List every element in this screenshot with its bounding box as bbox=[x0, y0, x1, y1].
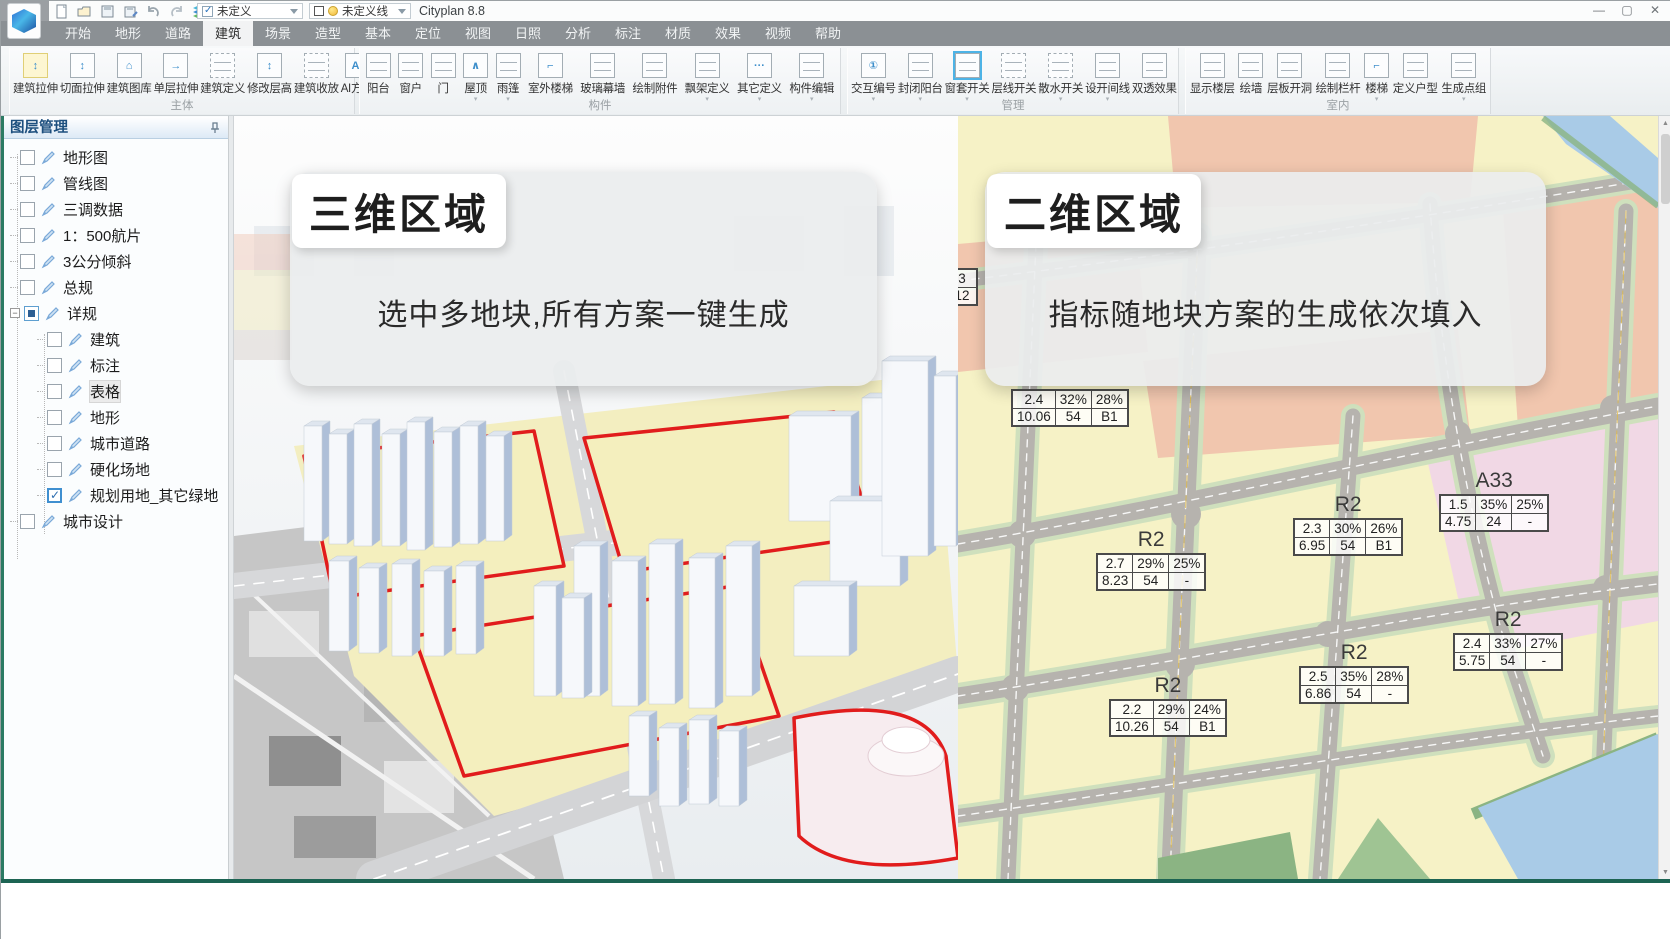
building-library-icon: ⌂ bbox=[117, 53, 142, 78]
indicator-values: 2.229%24%10.2654B1 bbox=[1109, 699, 1227, 737]
layer-item: 城市设计 bbox=[4, 508, 226, 534]
layer-visibility-checkbox[interactable] bbox=[47, 332, 62, 347]
draw-railing-icon bbox=[1325, 53, 1350, 78]
pencil-icon[interactable] bbox=[41, 202, 56, 217]
zone-code-label: R2 bbox=[1109, 674, 1227, 698]
canopy-button[interactable]: 雨篷▾ bbox=[495, 50, 522, 103]
ribbon-button-label: 窗户 bbox=[399, 80, 421, 96]
layer-visibility-checkbox[interactable] bbox=[20, 150, 35, 165]
layer-item: 地形图 bbox=[4, 144, 226, 170]
banner-2d-title: 二维区域 bbox=[987, 174, 1201, 248]
single-floor-extrude-icon: → bbox=[163, 53, 188, 78]
bay-line-icon bbox=[1095, 53, 1120, 78]
bay-line-button[interactable]: 设开间线▾ bbox=[1084, 50, 1131, 103]
slab-hole-icon bbox=[1277, 53, 1302, 78]
tree-connector bbox=[37, 365, 45, 366]
ribbon-tab-3[interactable]: 道路 bbox=[153, 21, 203, 46]
layer-panel-title: 图层管理 bbox=[10, 120, 68, 136]
app-logo[interactable] bbox=[7, 3, 41, 39]
floor-height-icon: ↕ bbox=[257, 53, 282, 78]
ribbon-button-label: 屋顶 bbox=[464, 80, 486, 96]
ribbon-tab-11[interactable]: 分析 bbox=[553, 21, 603, 46]
define-unit-button[interactable]: 定义户型 bbox=[1392, 50, 1439, 97]
layer-label[interactable]: 硬化场地 bbox=[90, 459, 150, 480]
layer-item: 规划用地_其它绿地 bbox=[4, 482, 226, 508]
layer-label[interactable]: 表格 bbox=[90, 381, 120, 402]
layer-panel-header: 图层管理 bbox=[4, 117, 228, 139]
window-button[interactable]: 窗户 bbox=[397, 50, 424, 97]
save-as-icon[interactable] bbox=[122, 3, 138, 19]
layer-visibility-checkbox[interactable] bbox=[20, 176, 35, 191]
checked-checkbox-icon[interactable] bbox=[202, 6, 213, 17]
other-define-button[interactable]: ···其它定义▾ bbox=[736, 50, 783, 103]
layer-visibility-checkbox[interactable] bbox=[47, 410, 62, 425]
define-unit-icon bbox=[1403, 53, 1428, 78]
pencil-icon[interactable] bbox=[68, 436, 83, 451]
undo-icon[interactable] bbox=[145, 3, 161, 19]
ribbon-tab-bar: 开始地形道路建筑场景造型基本定位视图日照分析标注材质效果视频帮助 bbox=[1, 21, 1670, 46]
ribbon-tab-2[interactable]: 地形 bbox=[103, 21, 153, 46]
section-extrude-button[interactable]: ↕切面拉伸 bbox=[59, 50, 106, 97]
parcel-indicator-table: 2.432%28%10.0654B1 bbox=[1011, 389, 1129, 427]
floor-line-toggle-icon bbox=[1001, 53, 1026, 78]
ribbon-button-label: 显示楼层 bbox=[1190, 80, 1235, 96]
ribbon-button-label: 交互编号 bbox=[851, 80, 896, 96]
indicator-values: 1.535%25%4.7524- bbox=[1439, 494, 1549, 532]
drawing-canvas[interactable]: 3122.432%28%10.0654B1R22.729%25%8.2354-R… bbox=[234, 116, 1658, 879]
ribbon-tab-16[interactable]: 帮助 bbox=[803, 21, 853, 46]
zone-code-label: R2 bbox=[1293, 493, 1403, 517]
ribbon-button-label: 层板开洞 bbox=[1267, 80, 1312, 96]
layer-visibility-checkbox[interactable] bbox=[47, 462, 62, 477]
draw-railing-button[interactable]: 绘制栏杆 bbox=[1315, 50, 1362, 97]
tree-connector bbox=[10, 183, 18, 184]
parcel-indicator-table-A33: A331.535%25%4.7524- bbox=[1439, 469, 1549, 532]
layer-label[interactable]: 总规 bbox=[63, 277, 93, 298]
balcony-button[interactable]: 阳台 bbox=[365, 50, 392, 97]
ribbon-group: ①交互编号▾封闭阳台▾窗套开关▾层线开关散水开关▾设开间线▾双透效果管理 bbox=[847, 48, 1179, 114]
building-define-icon bbox=[210, 53, 235, 78]
outdoor-stairs-button[interactable]: ⌐室外楼梯 bbox=[527, 50, 574, 97]
ribbon-tab-10[interactable]: 日照 bbox=[503, 21, 553, 46]
layer-visibility-checkbox[interactable] bbox=[47, 436, 62, 451]
title-bar: 未定义 未定义线 Cityplan 8.8 — ▢ ✕ bbox=[1, 1, 1670, 21]
layer-visibility-checkbox[interactable] bbox=[20, 280, 35, 295]
balcony-icon bbox=[366, 53, 391, 78]
layer-visibility-checkbox[interactable] bbox=[20, 202, 35, 217]
window-trim-toggle-icon bbox=[955, 53, 980, 78]
pencil-icon[interactable] bbox=[68, 358, 83, 373]
layer-label[interactable]: 详规 bbox=[67, 303, 97, 324]
save-icon[interactable] bbox=[99, 3, 115, 19]
glass-curtain-wall-icon bbox=[590, 53, 615, 78]
indicator-values: 312 bbox=[958, 268, 978, 306]
ribbon-button-label: 楼梯 bbox=[1365, 80, 1387, 96]
new-file-icon[interactable] bbox=[53, 3, 69, 19]
canopy-icon bbox=[496, 53, 521, 78]
parcel-indicator-table-R2: R22.729%25%8.2354- bbox=[1096, 528, 1206, 591]
section-extrude-icon: ↕ bbox=[70, 53, 95, 78]
overhang-define-button[interactable]: 飘架定义▾ bbox=[684, 50, 731, 103]
layer-item: 总规 bbox=[4, 274, 226, 300]
layer-visibility-checkbox[interactable] bbox=[20, 254, 35, 269]
ribbon-button-label: 散水开关 bbox=[1038, 80, 1083, 96]
layer-item: 地形 bbox=[4, 404, 226, 430]
indicator-values: 2.330%26%6.9554B1 bbox=[1293, 518, 1403, 556]
vertical-scrollbar[interactable]: ▲ ▼ bbox=[1658, 116, 1670, 879]
pencil-icon[interactable] bbox=[68, 410, 83, 425]
outdoor-stairs-icon: ⌐ bbox=[538, 53, 563, 78]
ribbon-tab-15[interactable]: 视频 bbox=[753, 21, 803, 46]
layer-visibility-checkbox[interactable] bbox=[24, 306, 39, 321]
window-trim-toggle-button[interactable]: 窗套开关▾ bbox=[944, 50, 991, 103]
ribbon-button-label: 定义户型 bbox=[1393, 80, 1438, 96]
chevron-down-icon[interactable] bbox=[290, 9, 298, 14]
generate-points-button[interactable]: 生成点组▾ bbox=[1440, 50, 1487, 103]
parcel-indicator-table-R2: R22.535%28%6.8654- bbox=[1299, 641, 1409, 704]
redo-icon[interactable] bbox=[168, 3, 184, 19]
ribbon-group-label: 主体 bbox=[10, 97, 354, 113]
layer-tree: 地形图管线图三调数据1：500航片3公分倾斜总规−详规建筑标注表格地形城市道路硬… bbox=[4, 144, 226, 877]
logo-cube-icon bbox=[12, 9, 36, 33]
zone-code-label: A33 bbox=[1439, 469, 1549, 493]
layer-visibility-checkbox[interactable] bbox=[20, 228, 35, 243]
ribbon-button-label: 层线开关 bbox=[991, 80, 1036, 96]
layer-label[interactable]: 规划用地_其它绿地 bbox=[90, 485, 218, 506]
ribbon-button-label: 绘制附件 bbox=[633, 80, 678, 96]
chevron-down-icon[interactable] bbox=[398, 9, 406, 14]
enclose-balcony-button[interactable]: 封闭阳台▾ bbox=[897, 50, 944, 103]
layer-item: 城市道路 bbox=[4, 430, 226, 456]
parcel-indicator-table-R2: R22.330%26%6.9554B1 bbox=[1293, 493, 1403, 556]
ribbon-button-label: 门 bbox=[438, 80, 449, 96]
banner-2d: 二维区域 指标随地块方案的生成依次填入 bbox=[985, 172, 1546, 386]
draw-wall-button[interactable]: 绘墙 bbox=[1237, 50, 1264, 97]
indicator-values: 2.433%27%5.7554- bbox=[1453, 633, 1563, 671]
banner-2d-subtitle: 指标随地块方案的生成依次填入 bbox=[985, 290, 1546, 334]
building-scale-button[interactable]: 建筑收放 bbox=[293, 50, 340, 97]
building-extrude-button[interactable]: ↕建筑拉伸 bbox=[12, 50, 59, 97]
collapse-toggle-icon[interactable]: − bbox=[10, 308, 20, 318]
layer-item: −详规 bbox=[4, 300, 226, 326]
ribbon-tab-7[interactable]: 基本 bbox=[353, 21, 403, 46]
ribbon-tab-1[interactable]: 开始 bbox=[53, 21, 103, 46]
ribbon-group: 阳台窗户门∧屋顶▾雨篷▾⌐室外楼梯玻璃幕墙绘制附件飘架定义▾···其它定义▾构件… bbox=[359, 48, 841, 114]
single-floor-extrude-button[interactable]: →单层拉伸 bbox=[152, 50, 199, 97]
tree-connector bbox=[37, 339, 45, 340]
pencil-icon[interactable] bbox=[68, 332, 83, 347]
xray-effect-icon bbox=[1142, 53, 1167, 78]
door-button[interactable]: 门 bbox=[430, 50, 457, 97]
open-folder-icon[interactable] bbox=[76, 3, 92, 19]
tree-connector bbox=[10, 209, 18, 210]
building-define-button[interactable]: 建筑定义 bbox=[199, 50, 246, 97]
ribbon-tab-8[interactable]: 定位 bbox=[403, 21, 453, 46]
cityplan-window: 未定义 未定义线 Cityplan 8.8 — ▢ ✕ 开始地形道路建筑场景造型… bbox=[0, 0, 1670, 939]
show-floors-button[interactable]: 显示楼层 bbox=[1189, 50, 1236, 97]
interactive-number-button[interactable]: ①交互编号▾ bbox=[850, 50, 897, 103]
tree-connector bbox=[37, 417, 45, 418]
pencil-icon[interactable] bbox=[41, 280, 56, 295]
ribbon-button-label: 切面拉伸 bbox=[60, 80, 105, 96]
app-title: Cityplan 8.8 bbox=[419, 4, 485, 18]
zone-code-label: R2 bbox=[1299, 641, 1409, 665]
layer-label[interactable]: 3公分倾斜 bbox=[63, 251, 131, 272]
close-button[interactable]: ✕ bbox=[1647, 3, 1663, 17]
door-icon bbox=[431, 53, 456, 78]
ribbon-button-label: 建筑定义 bbox=[200, 80, 245, 96]
show-floors-icon bbox=[1200, 53, 1225, 78]
draw-attachment-icon bbox=[642, 53, 667, 78]
main-area: 图层管理 地形图管线图三调数据1：500航片3公分倾斜总规−详规建筑标注表格地形… bbox=[1, 116, 1670, 879]
pushpin-icon[interactable] bbox=[208, 121, 222, 135]
xray-effect-button[interactable]: 双透效果 bbox=[1131, 50, 1178, 97]
layer-item: 硬化场地 bbox=[4, 456, 226, 482]
building-scale-icon bbox=[304, 53, 329, 78]
zone-code-label: R2 bbox=[1096, 528, 1206, 552]
pencil-icon[interactable] bbox=[41, 176, 56, 191]
indicator-values: 2.535%28%6.8654- bbox=[1299, 666, 1409, 704]
tree-connector bbox=[10, 521, 18, 522]
ribbon-button-label: 建筑收放 bbox=[294, 80, 339, 96]
slab-hole-button[interactable]: 层板开洞 bbox=[1266, 50, 1313, 97]
pencil-icon[interactable] bbox=[41, 254, 56, 269]
layer-visibility-checkbox[interactable] bbox=[47, 384, 62, 399]
draw-wall-icon bbox=[1238, 53, 1263, 78]
ribbon-button-label: 绘墙 bbox=[1240, 80, 1262, 96]
pencil-icon[interactable] bbox=[68, 462, 83, 477]
parcel-indicator-table: 312 bbox=[958, 268, 978, 306]
banner-3d-subtitle: 选中多地块,所有方案一键生成 bbox=[290, 290, 877, 334]
layer-label[interactable]: 标注 bbox=[90, 355, 120, 376]
ribbon-button-label: 绘制栏杆 bbox=[1316, 80, 1361, 96]
ribbon-button-label: 修改层高 bbox=[247, 80, 292, 96]
ribbon-tab-5[interactable]: 场景 bbox=[253, 21, 303, 46]
ribbon-button-label: 设开间线 bbox=[1085, 80, 1130, 96]
indicator-values: 2.432%28%10.0654B1 bbox=[1011, 389, 1129, 427]
tree-connector bbox=[10, 235, 18, 236]
pencil-icon[interactable] bbox=[41, 514, 56, 529]
color-swatch-icon[interactable] bbox=[314, 6, 324, 16]
generate-points-icon bbox=[1451, 53, 1476, 78]
layer-label[interactable]: 地形 bbox=[90, 407, 120, 428]
tree-connector bbox=[10, 287, 18, 288]
layer-item: 1：500航片 bbox=[4, 222, 226, 248]
layer-label[interactable]: 1：500航片 bbox=[63, 225, 141, 246]
window-edge bbox=[1, 116, 4, 879]
other-define-icon: ··· bbox=[747, 53, 772, 78]
floor-height-button[interactable]: ↕修改层高 bbox=[246, 50, 293, 97]
floor-line-toggle-button[interactable]: 层线开关 bbox=[990, 50, 1037, 97]
minimize-button[interactable]: — bbox=[1591, 3, 1607, 17]
window-icon bbox=[398, 53, 423, 78]
ribbon-button-label: 阳台 bbox=[367, 80, 389, 96]
line-style-combobox[interactable]: 未定义线 bbox=[309, 3, 411, 19]
bulb-icon bbox=[328, 6, 338, 16]
ribbon-button-label: 双透效果 bbox=[1132, 80, 1177, 96]
ribbon-button-label: 封闭阳台 bbox=[898, 80, 943, 96]
layer-label[interactable]: 城市设计 bbox=[63, 511, 123, 532]
parcel-indicator-table-R2: R22.433%27%5.7554- bbox=[1453, 608, 1563, 671]
ribbon-group: ↕建筑拉伸↕切面拉伸⌂建筑图库→单层拉伸建筑定义↕修改层高建筑收放AIAI方案主… bbox=[9, 48, 355, 114]
ribbon-tab-14[interactable]: 效果 bbox=[703, 21, 753, 46]
ribbon-button-label: 雨篷 bbox=[497, 80, 519, 96]
tree-connector bbox=[37, 443, 45, 444]
layer-item: 表格 bbox=[4, 378, 226, 404]
ribbon-button-label: 建筑图库 bbox=[107, 80, 152, 96]
scroll-up-arrow-icon[interactable]: ▲ bbox=[1659, 116, 1670, 130]
ribbon-group: 显示楼层绘墙层板开洞绘制栏杆⌐楼梯▾定义户型生成点组▾室内 bbox=[1185, 48, 1491, 114]
banner-3d-title: 三维区域 bbox=[292, 174, 506, 248]
layer-label[interactable]: 管线图 bbox=[63, 173, 108, 194]
combo-value: 未定义线 bbox=[342, 3, 388, 19]
layer-style-combobox[interactable]: 未定义 bbox=[197, 3, 303, 19]
ribbon-tab-4[interactable]: 建筑 bbox=[203, 21, 253, 46]
pencil-icon[interactable] bbox=[41, 150, 56, 165]
ribbon-group-label: 构件 bbox=[360, 97, 840, 113]
ribbon-tab-9[interactable]: 视图 bbox=[453, 21, 503, 46]
ribbon-group-label: 管理 bbox=[848, 97, 1178, 113]
component-edit-button[interactable]: 构件编辑▾ bbox=[788, 50, 835, 103]
pencil-icon[interactable] bbox=[41, 228, 56, 243]
ribbon-button-label: 建筑拉伸 bbox=[13, 80, 58, 96]
tree-connector bbox=[10, 261, 18, 262]
layer-item: 管线图 bbox=[4, 170, 226, 196]
layer-label[interactable]: 建筑 bbox=[90, 329, 120, 350]
stairs-button[interactable]: ⌐楼梯▾ bbox=[1363, 50, 1390, 103]
pencil-icon[interactable] bbox=[68, 488, 83, 503]
enclose-balcony-icon bbox=[908, 53, 933, 78]
component-edit-icon bbox=[799, 53, 824, 78]
ribbon-button-label: 单层拉伸 bbox=[153, 80, 198, 96]
layer-item: 3公分倾斜 bbox=[4, 248, 226, 274]
ribbon-button-label: 飘架定义 bbox=[685, 80, 730, 96]
draw-attachment-button[interactable]: 绘制附件 bbox=[632, 50, 679, 97]
scroll-down-arrow-icon[interactable]: ▼ bbox=[1659, 865, 1670, 879]
tree-connector bbox=[10, 157, 18, 158]
layer-item: 三调数据 bbox=[4, 196, 226, 222]
tree-connector bbox=[37, 391, 45, 392]
tree-connector bbox=[37, 469, 45, 470]
ribbon: ↕建筑拉伸↕切面拉伸⌂建筑图库→单层拉伸建筑定义↕修改层高建筑收放AIAI方案主… bbox=[1, 46, 1670, 116]
roof-button[interactable]: ∧屋顶▾ bbox=[462, 50, 489, 103]
tree-connector bbox=[37, 495, 45, 496]
ribbon-button-label: 生成点组 bbox=[1441, 80, 1486, 96]
indicator-values: 2.729%25%8.2354- bbox=[1096, 553, 1206, 591]
ribbon-tab-12[interactable]: 标注 bbox=[603, 21, 653, 46]
layer-visibility-checkbox[interactable] bbox=[47, 488, 62, 503]
ribbon-button-label: 室外楼梯 bbox=[528, 80, 573, 96]
interactive-number-icon: ① bbox=[861, 53, 886, 78]
ribbon-button-label: 玻璃幕墙 bbox=[580, 80, 625, 96]
zone-code-label: R2 bbox=[1453, 608, 1563, 632]
apron-toggle-icon bbox=[1048, 53, 1073, 78]
pencil-icon[interactable] bbox=[68, 384, 83, 399]
ribbon-tab-6[interactable]: 造型 bbox=[303, 21, 353, 46]
overhang-define-icon bbox=[695, 53, 720, 78]
parcel-indicator-table-R2: R22.229%24%10.2654B1 bbox=[1109, 674, 1227, 737]
roof-icon: ∧ bbox=[463, 53, 488, 78]
layer-visibility-checkbox[interactable] bbox=[20, 514, 35, 529]
ribbon-group-label: 室内 bbox=[1186, 97, 1490, 113]
ribbon-tab-13[interactable]: 材质 bbox=[653, 21, 703, 46]
layer-label[interactable]: 地形图 bbox=[63, 147, 108, 168]
maximize-button[interactable]: ▢ bbox=[1619, 3, 1635, 17]
layer-item: 建筑 bbox=[4, 326, 226, 352]
building-library-button[interactable]: ⌂建筑图库 bbox=[106, 50, 153, 97]
ribbon-button-label: 其它定义 bbox=[737, 80, 782, 96]
layer-label[interactable]: 三调数据 bbox=[63, 199, 123, 220]
stairs-icon: ⌐ bbox=[1364, 53, 1389, 78]
ribbon-button-label: 构件编辑 bbox=[789, 80, 834, 96]
combo-value: 未定义 bbox=[217, 3, 252, 19]
status-bar bbox=[1, 883, 1670, 939]
ribbon-button-label: 窗套开关 bbox=[945, 80, 990, 96]
apron-toggle-button[interactable]: 散水开关▾ bbox=[1037, 50, 1084, 103]
layer-manager-panel: 图层管理 地形图管线图三调数据1：500航片3公分倾斜总规−详规建筑标注表格地形… bbox=[1, 116, 229, 879]
building-extrude-icon: ↕ bbox=[23, 53, 48, 78]
pencil-icon[interactable] bbox=[45, 306, 60, 321]
scrollbar-thumb[interactable] bbox=[1661, 134, 1670, 204]
glass-curtain-wall-button[interactable]: 玻璃幕墙 bbox=[579, 50, 626, 97]
banner-3d: 三维区域 选中多地块,所有方案一键生成 bbox=[290, 172, 877, 386]
layer-visibility-checkbox[interactable] bbox=[47, 358, 62, 373]
layer-item: 标注 bbox=[4, 352, 226, 378]
layer-label[interactable]: 城市道路 bbox=[90, 433, 150, 454]
